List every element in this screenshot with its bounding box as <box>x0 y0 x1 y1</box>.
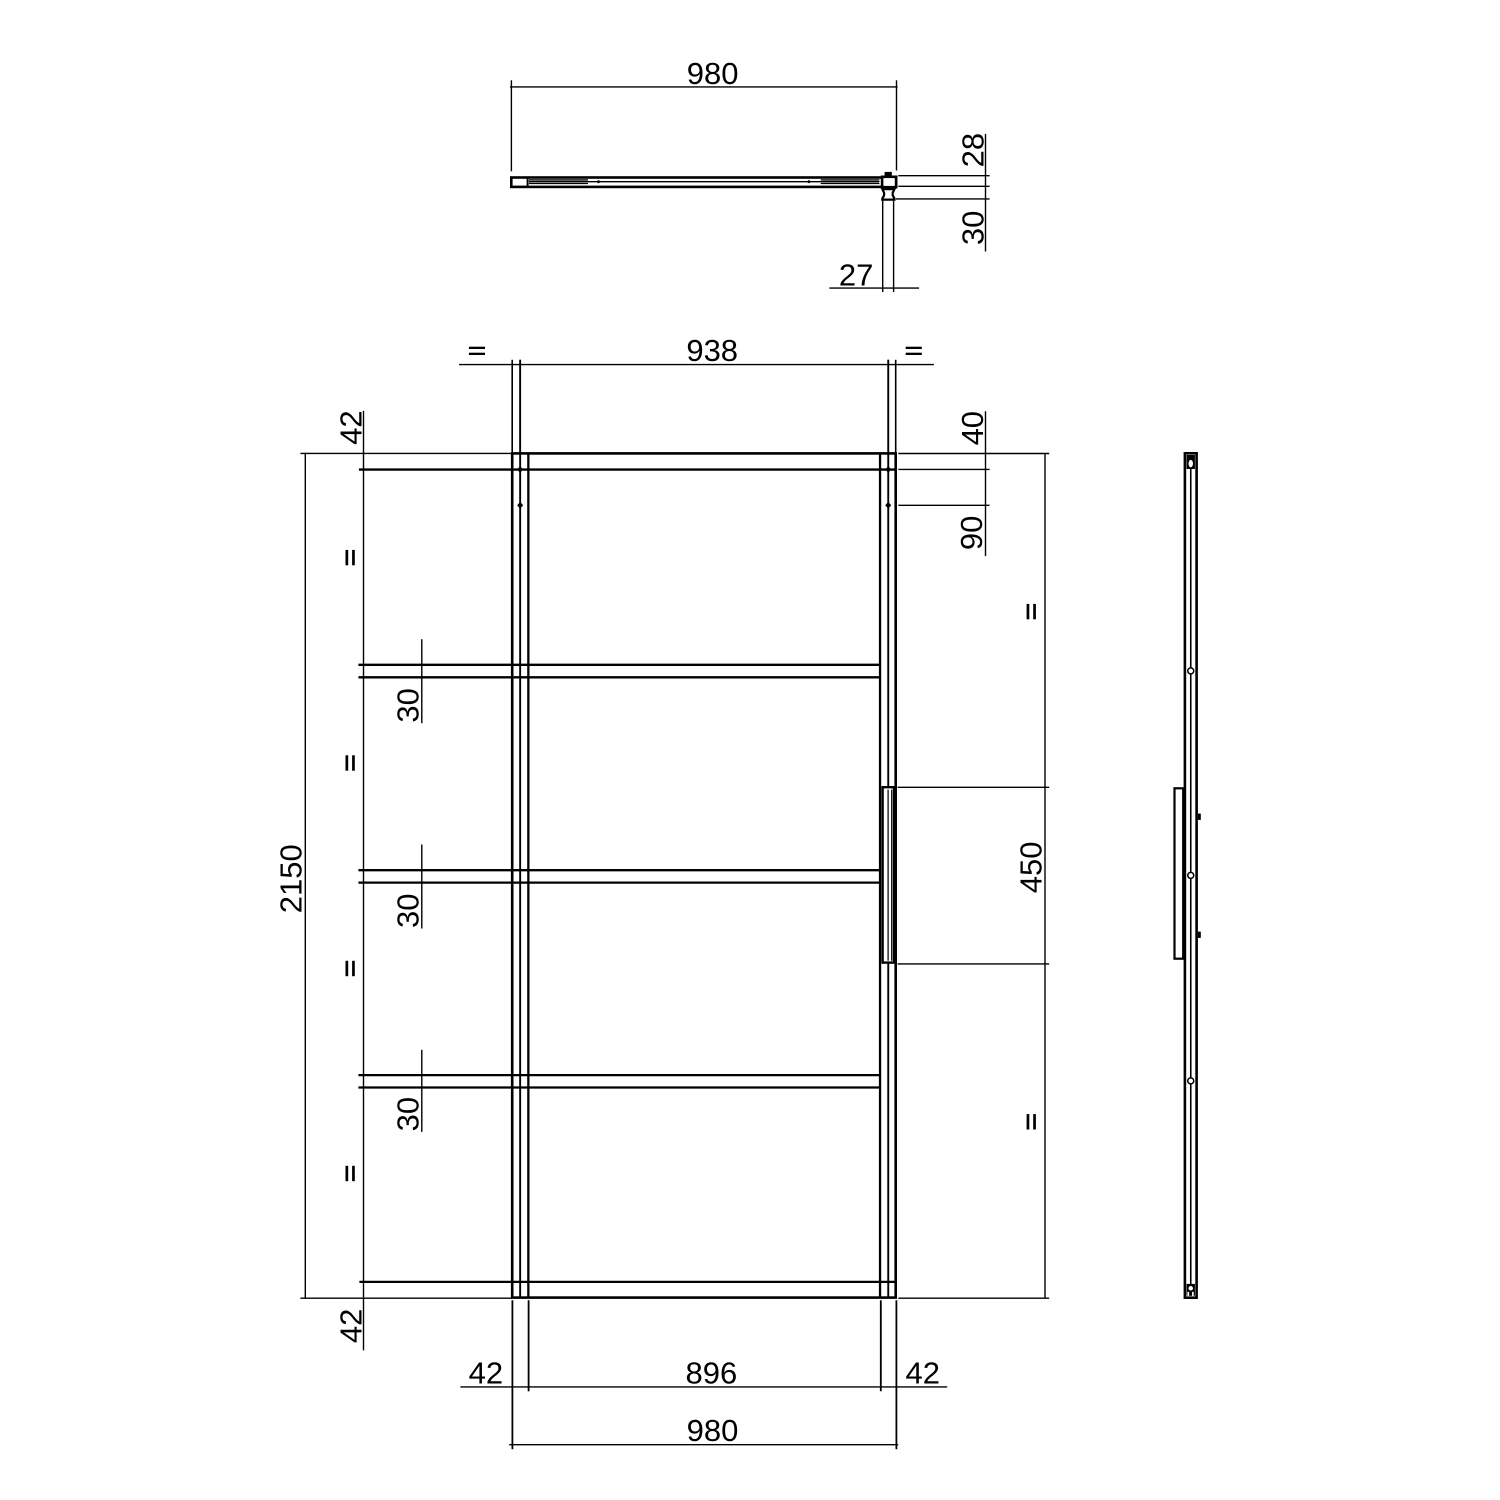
svg-text:40: 40 <box>955 411 990 445</box>
svg-text:42: 42 <box>906 1355 940 1390</box>
svg-text:450: 450 <box>1013 842 1048 894</box>
svg-text:27: 27 <box>839 257 873 292</box>
svg-text:938: 938 <box>686 333 738 368</box>
svg-text:30: 30 <box>955 211 990 245</box>
svg-text:30: 30 <box>391 894 426 928</box>
svg-text:42: 42 <box>469 1355 503 1390</box>
svg-text:980: 980 <box>687 1413 739 1448</box>
svg-text:30: 30 <box>391 1097 426 1131</box>
svg-text:42: 42 <box>333 410 368 444</box>
svg-text:30: 30 <box>391 688 426 722</box>
svg-text:896: 896 <box>686 1355 738 1390</box>
svg-text:2150: 2150 <box>273 844 308 913</box>
svg-text:28: 28 <box>955 133 990 167</box>
svg-text:90: 90 <box>954 516 989 550</box>
svg-text:980: 980 <box>687 56 739 91</box>
svg-text:42: 42 <box>333 1309 368 1343</box>
